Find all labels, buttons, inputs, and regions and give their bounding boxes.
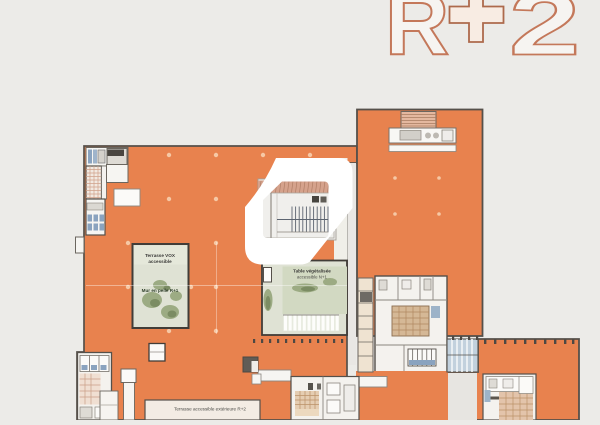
svg-text:R: R: [385, 0, 449, 74]
svg-text:Terrasse accessible extérieure: Terrasse accessible extérieure R+2: [174, 407, 246, 412]
svg-text:accessible: accessible: [148, 259, 172, 264]
svg-text:accessible N+1: accessible N+1: [297, 275, 327, 280]
svg-text:Table végétalisée: Table végétalisée: [293, 269, 331, 274]
svg-text:Terrasse VOX: Terrasse VOX: [145, 253, 176, 258]
svg-text:Mur en pelle R+1: Mur en pelle R+1: [142, 288, 179, 293]
svg-text:2: 2: [509, 0, 580, 74]
